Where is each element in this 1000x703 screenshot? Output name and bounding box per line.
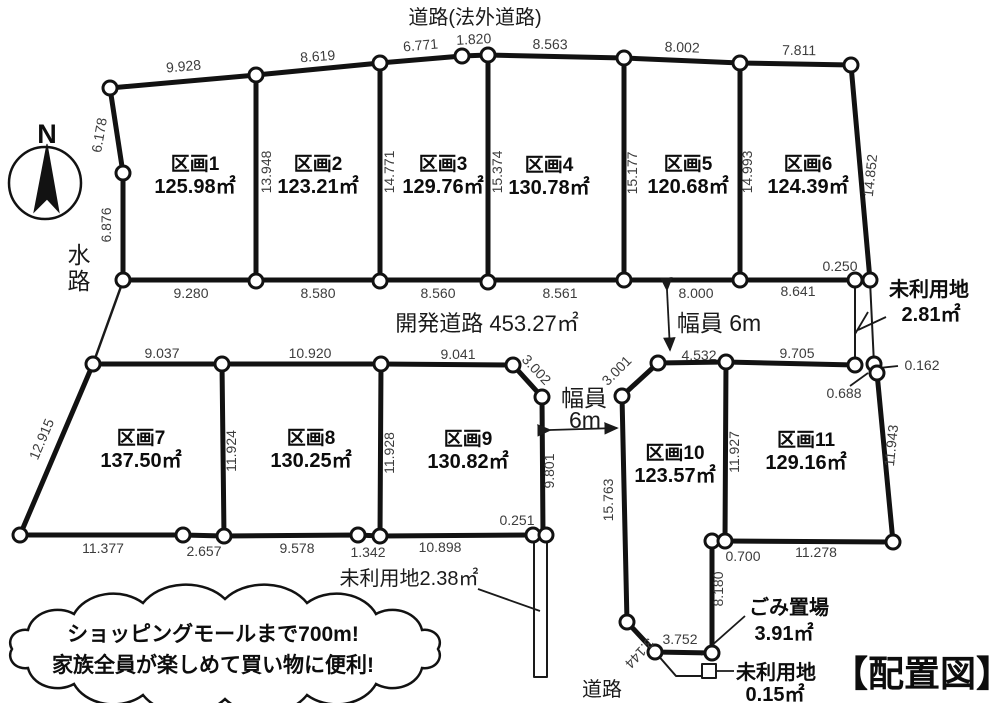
dimension-label: 3.001	[598, 352, 634, 388]
page-title: 【配置図】	[832, 653, 1000, 694]
garbage-label-2: 3.91㎡	[755, 621, 814, 645]
dimension-label: 8.000	[678, 285, 713, 301]
dimension-label: 9.801	[541, 453, 557, 488]
compass: N	[9, 119, 81, 219]
dimension-label: 9.280	[173, 285, 208, 301]
dimension-label: 14.993	[739, 150, 755, 193]
dimension-label: 8.641	[780, 283, 815, 299]
plot-name-label: 区画11	[777, 430, 836, 451]
dimension-label: 9.037	[144, 345, 179, 361]
dimension-label: 0.162	[904, 357, 939, 373]
dimension-label: 0.688	[826, 385, 861, 401]
garbage-label-1: ごみ置場	[749, 595, 829, 619]
dimension-label: 0.250	[822, 258, 857, 274]
dimension-label: 11.377	[82, 540, 124, 556]
dimension-label: 8.580	[300, 285, 335, 301]
plot-area-label: 130.78㎡	[508, 175, 589, 199]
plot-area-label: 120.68㎡	[647, 174, 728, 198]
plot-name-label: 区画5	[664, 154, 713, 175]
dimension-label: 0.251	[499, 512, 534, 528]
dimension-label: 8.563	[532, 36, 568, 53]
dimension-label: 4.532	[681, 347, 716, 363]
plot-area-label: 129.76㎡	[402, 174, 483, 198]
plot-name-label: 区画4	[525, 155, 574, 176]
dimension-label: 1.820	[456, 30, 492, 48]
dimension-label: 11.943	[881, 424, 901, 467]
dimension-label: 9.928	[165, 57, 202, 76]
unused-right-label-1: 未利用地	[889, 278, 969, 301]
plot-area-label: 129.16㎡	[765, 450, 846, 474]
plot-name-label: 区画6	[784, 154, 833, 175]
top-road-label: 道路(法外道路)	[408, 6, 541, 29]
road-width-right-label: 幅員 6m	[677, 310, 761, 336]
unused-small-label-1: 未利用地	[736, 661, 816, 684]
callout-line1: ショッピングモールまで700m!	[67, 622, 359, 646]
bottom-road-label: 道路	[582, 678, 622, 701]
site-plan-drawing: N ショッピングモールまで700m! 家族全員が楽しめて買い物に便利! 道路(法…	[0, 0, 1000, 703]
waterway-label-char2: 路	[68, 268, 91, 294]
unused-right-label-2: 2.81㎡	[902, 302, 961, 326]
callout-cloud: ショッピングモールまで700m! 家族全員が楽しめて買い物に便利!	[10, 585, 440, 703]
plot-name-label: 区画10	[645, 443, 704, 464]
site-plan-page: N ショッピングモールまで700m! 家族全員が楽しめて買い物に便利! 道路(法…	[0, 0, 1000, 703]
plot-area-label: 130.25㎡	[270, 448, 351, 472]
dimension-label: 8.619	[300, 47, 336, 65]
unused-strip-label: 未利用地2.38㎡	[340, 566, 479, 590]
dimension-label: 3.002	[519, 351, 555, 388]
dimension-label: 14.852	[860, 153, 880, 197]
plot-area-label: 123.57㎡	[634, 463, 715, 487]
plot-name-label: 区画9	[444, 429, 493, 450]
dimension-labels: 9.9288.6196.7711.8208.5638.0027.8116.178…	[26, 30, 940, 672]
dimension-label: 11.278	[795, 544, 837, 560]
plot-name-label: 区画7	[117, 428, 166, 449]
plot-area-label: 130.82㎡	[427, 449, 508, 473]
plot-area-label: 125.98㎡	[154, 174, 235, 198]
dimension-label: 10.898	[419, 539, 462, 555]
plot-area-label: 137.50㎡	[100, 448, 181, 472]
dimension-label: 0.700	[725, 548, 760, 564]
dimension-label: 9.041	[440, 346, 475, 362]
dimension-label: 3.752	[662, 631, 697, 647]
dimension-label: 11.927	[726, 431, 742, 473]
unused-small-label-2: 0.15㎡	[746, 682, 805, 703]
waterway-label-char1: 水	[68, 242, 91, 268]
dimension-label: 8.561	[542, 285, 577, 301]
dimension-label: 6.771	[402, 36, 439, 55]
road-width-mid-label-2: 6m	[569, 407, 601, 433]
dimension-label: 8.560	[420, 285, 455, 301]
plot-area-label: 123.21㎡	[277, 174, 358, 198]
dimension-label: 8.002	[664, 38, 700, 55]
dimension-label: 2.657	[186, 543, 221, 559]
dimension-label: 1.342	[350, 544, 385, 560]
dimension-label: 9.705	[779, 345, 814, 361]
plot-name-label: 区画2	[294, 154, 343, 175]
dimension-label: 15.374	[489, 150, 505, 193]
callout-line2: 家族全員が楽しめて買い物に便利!	[52, 653, 374, 677]
compass-needle-icon	[34, 144, 59, 212]
dimension-label: 15.177	[624, 151, 640, 194]
dimension-label: 11.924	[223, 430, 239, 472]
dimension-label: 6.178	[88, 116, 110, 153]
plot-name-label: 区画3	[419, 154, 468, 175]
plot-name-label: 区画8	[287, 428, 336, 449]
plot-name-label: 区画1	[171, 154, 220, 175]
dimension-label: 7.811	[782, 42, 816, 59]
dimension-label: 11.928	[381, 432, 397, 474]
dimension-label: 13.948	[258, 150, 274, 193]
dimension-label: 10.920	[289, 345, 332, 361]
dimension-label: 8.180	[710, 571, 726, 606]
dimension-label: 14.771	[381, 150, 397, 193]
dimension-label: 6.876	[98, 207, 114, 242]
dimension-label: 9.578	[279, 540, 314, 556]
dimension-label: 15.763	[600, 478, 616, 521]
plot-area-label: 124.39㎡	[767, 174, 848, 198]
dev-road-label: 開発道路 453.27㎡	[395, 311, 578, 336]
